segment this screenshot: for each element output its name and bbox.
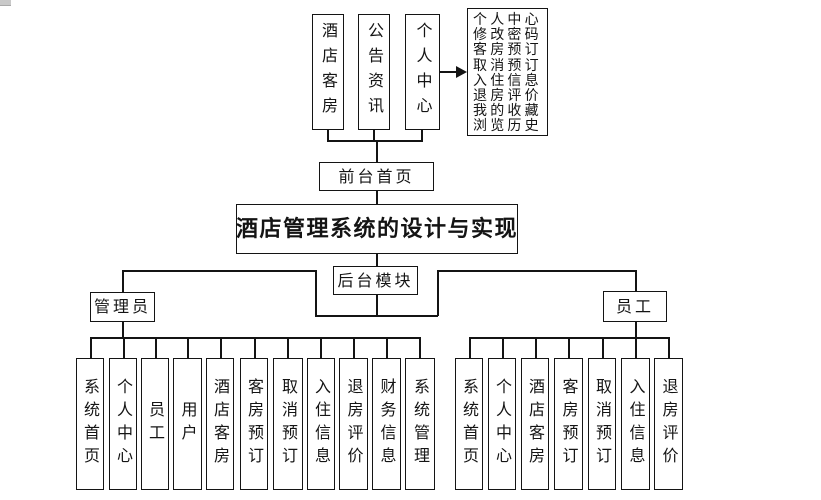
admin-module-label: 入住信息 — [313, 378, 329, 470]
connector-line — [469, 337, 471, 358]
connector-line — [386, 337, 388, 358]
staff-module-label: 酒店客房 — [527, 378, 543, 470]
arrow-right-icon — [456, 66, 467, 78]
connector-line — [535, 337, 537, 358]
system-title-box: 酒店管理系统的设计与实现 — [236, 204, 518, 254]
connector-line — [155, 337, 157, 358]
admin-module-checkin-info: 入住信息 — [307, 358, 335, 490]
admin-module-label: 员工 — [147, 401, 163, 447]
connector-line — [287, 337, 289, 358]
front-module-personal-center: 个人中心 — [405, 14, 440, 130]
front-home-label: 前台首页 — [338, 169, 414, 185]
staff-module-cancel-booking: 取消预订 — [588, 358, 616, 490]
admin-module-personal-center: 个人中心 — [109, 358, 137, 490]
connector-line — [122, 322, 124, 338]
admin-module-label: 客房预订 — [246, 378, 262, 470]
admin-module-cancel-booking: 取消预订 — [273, 358, 303, 490]
admin-module-system-home: 系统首页 — [76, 358, 104, 490]
staff-module-label: 个人中心 — [494, 378, 510, 470]
staff-module-label: 退房评价 — [661, 378, 677, 470]
connector-line — [320, 337, 322, 358]
front-module-label: 个人中心 — [415, 22, 431, 122]
admin-module-label: 取消预订 — [280, 378, 296, 470]
connector-line — [187, 337, 189, 358]
profile-menu-item: 入住信息 — [473, 74, 547, 89]
profile-menu-item: 个人中心 — [473, 13, 547, 28]
staff-module-system-home: 系统首页 — [455, 358, 483, 490]
connector-line — [254, 337, 256, 358]
admin-module-staff: 员工 — [141, 358, 169, 490]
admin-module-checkout-review: 退房评价 — [339, 358, 368, 490]
staff-module-hotel-rooms: 酒店客房 — [521, 358, 549, 490]
staff-module-checkout-review: 退房评价 — [654, 358, 683, 490]
connector-line — [220, 337, 222, 358]
profile-menu-item: 客房预订 — [473, 43, 547, 58]
front-module-label: 公告资讯 — [366, 22, 382, 122]
admin-module-system-management: 系统管理 — [405, 358, 435, 490]
connector-line — [635, 337, 637, 358]
connector-line — [376, 191, 378, 204]
front-module-label: 酒店客房 — [320, 22, 336, 122]
admin-module-label: 系统管理 — [412, 378, 428, 470]
connector-line — [635, 270, 637, 291]
staff-module-personal-center: 个人中心 — [488, 358, 516, 490]
admin-module-label: 用户 — [180, 401, 196, 447]
connector-line — [327, 140, 423, 142]
staff-role-box: 员工 — [603, 291, 667, 322]
front-home-box: 前台首页 — [319, 162, 434, 191]
connector-line — [315, 270, 317, 316]
backend-module-label: 后台模块 — [337, 273, 413, 289]
staff-role-label: 员工 — [616, 299, 654, 315]
connector-line — [353, 337, 355, 358]
profile-menu-box: 个人中心 修改密码 客房预订 取消预订 入住信息 退房评价 我的收藏 浏览历史 — [467, 8, 548, 136]
staff-module-label: 入住信息 — [628, 378, 644, 470]
staff-module-label: 系统首页 — [461, 378, 477, 470]
admin-module-finance-info: 财务信息 — [372, 358, 401, 490]
profile-menu-item: 取消预订 — [473, 59, 547, 74]
connector-line — [376, 254, 378, 266]
connector-line — [419, 337, 421, 358]
staff-module-room-booking: 客房预订 — [554, 358, 583, 490]
admin-module-label: 财务信息 — [379, 378, 395, 470]
connector-line — [437, 270, 439, 316]
connector-line — [437, 270, 636, 272]
connector-line — [376, 141, 378, 163]
staff-module-label: 客房预订 — [561, 378, 577, 470]
admin-module-label: 酒店客房 — [212, 378, 228, 470]
connector-line — [602, 337, 604, 358]
front-module-announcements: 公告资讯 — [358, 14, 390, 130]
profile-menu-item: 我的收藏 — [473, 104, 547, 119]
front-module-hotel-rooms: 酒店客房 — [312, 14, 344, 130]
connector-line — [568, 337, 570, 358]
connector-line — [376, 295, 378, 316]
connector-line — [90, 337, 92, 358]
staff-module-checkin-info: 入住信息 — [621, 358, 650, 490]
connector-line — [635, 322, 637, 338]
staff-module-label: 取消预订 — [594, 378, 610, 470]
admin-role-box: 管理员 — [90, 292, 155, 322]
profile-menu-item: 浏览历史 — [473, 119, 547, 134]
admin-module-users: 用户 — [173, 358, 202, 490]
admin-module-hotel-rooms: 酒店客房 — [206, 358, 234, 490]
connector-line — [122, 270, 316, 272]
admin-module-room-booking: 客房预订 — [240, 358, 268, 490]
connector-line — [668, 337, 670, 358]
profile-menu-item: 退房评价 — [473, 89, 547, 104]
org-chart-canvas: 酒店客房 公告资讯 个人中心 个人中心 修改密码 客房预订 取消预订 入住信息 … — [0, 0, 821, 500]
admin-module-label: 个人中心 — [115, 378, 131, 470]
admin-role-label: 管理员 — [94, 299, 151, 315]
admin-module-label: 系统首页 — [82, 378, 98, 470]
connector-line — [122, 270, 124, 292]
connector-line — [502, 337, 504, 358]
system-title: 酒店管理系统的设计与实现 — [236, 218, 518, 240]
backend-module-box: 后台模块 — [333, 266, 418, 295]
connector-line — [123, 337, 125, 358]
corner-artifact — [0, 0, 11, 6]
admin-module-label: 退房评价 — [346, 378, 362, 470]
